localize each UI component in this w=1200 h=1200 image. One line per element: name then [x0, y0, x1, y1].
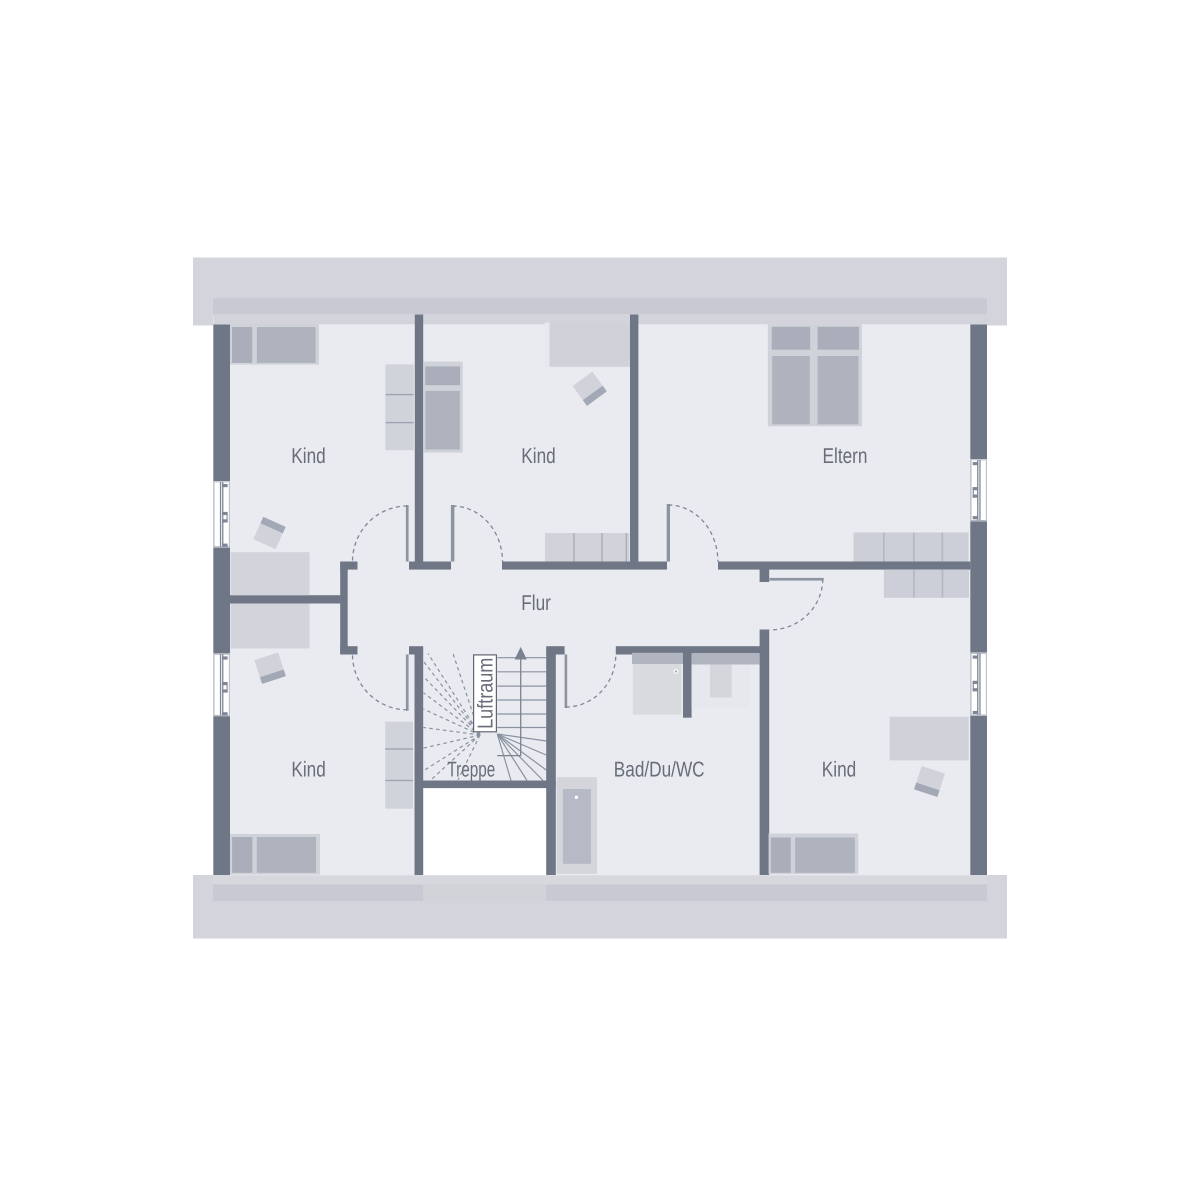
svg-text:Kind: Kind [822, 758, 856, 782]
svg-text:Bad/Du/WC: Bad/Du/WC [614, 758, 705, 782]
svg-text:Kind: Kind [291, 444, 325, 468]
svg-text:Kind: Kind [291, 758, 325, 782]
svg-text:Eltern: Eltern [823, 444, 868, 468]
svg-text:Treppe: Treppe [447, 758, 495, 782]
svg-text:Kind: Kind [521, 444, 555, 468]
svg-text:Luftraum: Luftraum [473, 658, 497, 729]
svg-text:Flur: Flur [521, 591, 551, 615]
